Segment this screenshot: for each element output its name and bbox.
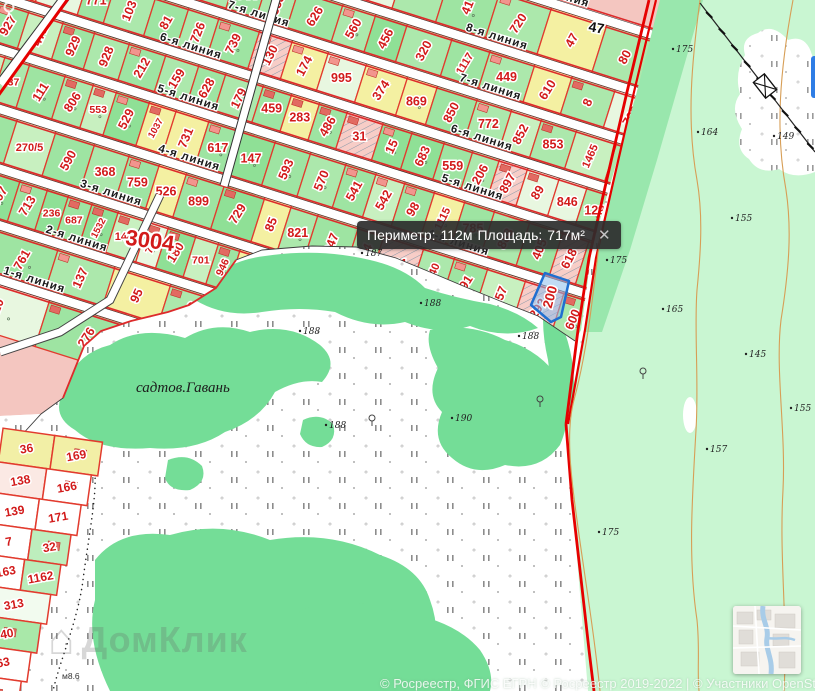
elevation-dot bbox=[451, 417, 453, 419]
elevation-dot bbox=[662, 308, 664, 310]
map-pin-icon bbox=[0, 0, 18, 20]
elevation-dot bbox=[697, 131, 699, 133]
place-label: садтов.Гавань bbox=[136, 380, 230, 396]
parcel-number: 995 bbox=[331, 71, 352, 85]
overview-map[interactable] bbox=[733, 606, 801, 674]
parcel-number: 687 bbox=[65, 214, 83, 226]
parcel-number: 559 bbox=[442, 159, 463, 173]
elevation-label: 155 bbox=[735, 214, 752, 224]
elevation-dot bbox=[598, 531, 600, 533]
area-value: 717м² bbox=[547, 227, 585, 243]
parcel-number: 846 bbox=[557, 195, 578, 209]
watermark: ⌂ ДомКлик bbox=[48, 618, 248, 662]
parcel-number: 449 bbox=[496, 70, 517, 84]
parcel-number: 36 bbox=[19, 441, 35, 457]
parcel-number: 771 bbox=[86, 0, 107, 7]
parcel-number: 853 bbox=[543, 137, 564, 151]
tooltip-close-icon[interactable]: ✕ bbox=[598, 228, 611, 243]
elevation-label: 155 bbox=[794, 404, 811, 414]
elevation-label: 165 bbox=[666, 305, 683, 315]
area-label: Площадь: bbox=[477, 227, 542, 243]
elevation-dot bbox=[731, 217, 733, 219]
elevation-dot bbox=[299, 330, 301, 332]
parcel-number: 772 bbox=[478, 117, 499, 131]
elevation-label: 188 bbox=[522, 332, 539, 342]
elevation-dot bbox=[773, 135, 775, 137]
parcel-number: 759 bbox=[127, 175, 148, 189]
parcel-number: 32 bbox=[42, 539, 58, 555]
elevation-dot bbox=[672, 48, 674, 50]
parcel-number: 236 bbox=[43, 207, 61, 219]
parcel-number: 270/5 bbox=[16, 142, 44, 154]
parcel-number: 368 bbox=[95, 165, 116, 179]
attribution: © Росреестр, ФГИС ЕГРН © Росреестр 2019-… bbox=[380, 676, 815, 691]
parcel-number: 821 bbox=[287, 226, 308, 240]
perimeter-value: 112м bbox=[441, 227, 473, 243]
pylon-label: 47 bbox=[587, 18, 605, 36]
elevation-label: 190 bbox=[455, 414, 472, 424]
elevation-label: 175 bbox=[676, 45, 693, 55]
elevation-dot bbox=[325, 424, 327, 426]
elevation-label: 188 bbox=[329, 421, 346, 431]
elevation-dot bbox=[420, 302, 422, 304]
right-edge-panel[interactable] bbox=[811, 56, 815, 98]
elevation-dot bbox=[606, 259, 608, 261]
parcel-number: 701 bbox=[192, 254, 210, 266]
bridge-label: м8.6 bbox=[62, 671, 80, 681]
parcel-number: 283 bbox=[289, 111, 310, 125]
parcel-number: 553 bbox=[89, 104, 107, 116]
elevation-dot bbox=[745, 353, 747, 355]
elevation-label: 145 bbox=[749, 350, 766, 360]
elevation-dot bbox=[361, 252, 363, 254]
elevation-dot bbox=[706, 448, 708, 450]
parcel-number: 869 bbox=[406, 94, 427, 108]
elevation-dot bbox=[518, 335, 520, 337]
elevation-label: 188 bbox=[424, 299, 441, 309]
map-canvas[interactable]: 4624675397952753306760820222146224175640… bbox=[0, 0, 815, 691]
elevation-label: 187 bbox=[365, 249, 382, 259]
elevation-label: 157 bbox=[710, 445, 727, 455]
parcel-number: 459 bbox=[261, 102, 282, 116]
elevation-label: 175 bbox=[602, 528, 619, 538]
parcel-number: 147 bbox=[241, 151, 262, 165]
cadastral-map[interactable]: 4624675397952753306760820222146224175640… bbox=[0, 0, 815, 691]
measurement-tooltip: Периметр: 112м Площадь: 717м² ✕ bbox=[357, 221, 621, 249]
parcel-number: 899 bbox=[188, 195, 209, 209]
parcel-number: 31 bbox=[352, 129, 366, 143]
house-icon: ⌂ bbox=[48, 618, 76, 662]
parcel-number: 617 bbox=[207, 141, 228, 155]
elevation-label: 188 bbox=[303, 327, 320, 337]
elevation-label: 149 bbox=[777, 132, 794, 142]
watermark-text: ДомКлик bbox=[82, 619, 248, 661]
elevation-dot bbox=[790, 407, 792, 409]
elevation-label: 175 bbox=[610, 256, 627, 266]
perimeter-label: Периметр: bbox=[367, 227, 436, 243]
elevation-label: 164 bbox=[701, 128, 718, 138]
